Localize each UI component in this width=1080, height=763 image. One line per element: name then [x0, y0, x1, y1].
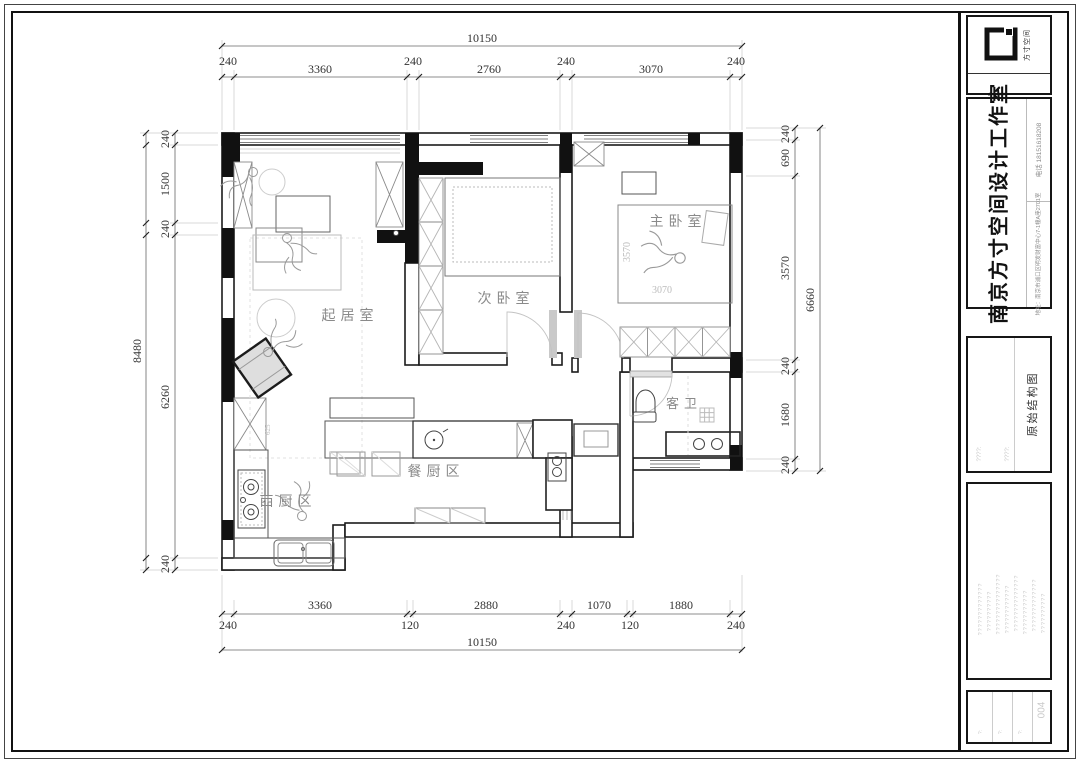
dim-right-total: 6660	[803, 288, 817, 312]
sheet-number: 004	[1037, 702, 1048, 719]
dim-bot-8: 240	[727, 618, 745, 632]
note-col-0: ?????????????	[976, 544, 985, 674]
note-text-1: ??????????	[987, 591, 993, 632]
label-bath: 客卫	[666, 396, 702, 411]
drawing-title-box: 原始结构图 ????: ????:	[966, 336, 1052, 473]
dim-bottom-total: 10150	[467, 635, 497, 649]
dim-bot-2: 120	[401, 618, 419, 632]
footer-label-1: ?:	[998, 730, 1004, 734]
logo-label-wrap: 方寸空间	[1020, 17, 1034, 73]
westkitchen-tall-cabinet	[234, 398, 266, 450]
dim-top-5: 3070	[639, 62, 663, 76]
dim-top-2: 240	[404, 54, 422, 68]
company-name: 南京方寸空间设计工作室	[983, 82, 1012, 324]
dim-left-3: 6260	[158, 385, 172, 409]
dim-right-2: 3570	[778, 256, 792, 280]
note-col-5: ???????????	[1021, 554, 1030, 669]
phone-wrap: 电话 18151618208	[1026, 99, 1050, 201]
drawing-sheet: 起居室 次卧室 主卧室 客卫 餐厨区 西厨区 3570 3070 625	[0, 0, 1080, 763]
island-end-cabinet	[517, 423, 533, 458]
dim-top-4: 240	[557, 54, 575, 68]
company-address: 地址：南京市浦口区明发财富中心7-1幢A座2701室	[1034, 192, 1042, 315]
dim-bot-4: 240	[557, 618, 575, 632]
dim-master-width: 3070	[652, 285, 672, 296]
bedroom2-furniture	[445, 178, 560, 276]
drawing-meta-right-wrap: ????:	[1002, 438, 1014, 470]
master-furniture	[618, 172, 732, 303]
company-name-wrap: 南京方寸空间设计工作室	[968, 99, 1026, 306]
note-text-5: ???????????	[1023, 589, 1029, 634]
dim-bot-7: 1880	[669, 598, 693, 612]
dim-top-3: 2760	[477, 62, 501, 76]
note-col-6: ?????????????	[1030, 539, 1039, 671]
dim-left-1: 1500	[158, 172, 172, 196]
label-master: 主卧室	[650, 213, 707, 229]
master-wardrobe	[620, 327, 730, 357]
label-bedroom2: 次卧室	[478, 290, 535, 306]
footer-label-2: ?:	[1018, 730, 1024, 734]
dim-bot-3: 2880	[474, 598, 498, 612]
logo-box-divider	[968, 73, 1050, 74]
living-right-cabinet	[376, 162, 403, 236]
dim-top-total: 10150	[467, 31, 497, 45]
bedroom2-wardrobe	[419, 178, 443, 354]
dim-bot-0: 240	[219, 618, 237, 632]
dim-left-total: 8480	[130, 339, 144, 363]
dim-left-4: 240	[158, 555, 172, 573]
footer-box: 004 ?: ?: ?:	[966, 690, 1052, 744]
note-col-1: ??????????	[985, 556, 994, 666]
note-text-6: ?????????????	[1032, 579, 1038, 632]
address-wrap: 地址：南京市浦口区明发财富中心7-1幢A座2701室	[1026, 201, 1050, 306]
dim-bot-1: 3360	[308, 598, 332, 612]
drawing-title-wrap: 原始结构图	[1014, 338, 1049, 470]
note-text-7: ??????????	[1041, 593, 1047, 634]
dim-right-4: 1680	[778, 403, 792, 427]
label-dining: 餐厨区	[408, 463, 465, 479]
note-col-4: ??????????????	[1012, 532, 1021, 674]
drawing-meta-left: ????:	[977, 446, 983, 461]
drawing-title: 原始结构图	[1024, 372, 1040, 437]
sheet-number-wrap: 004	[1034, 696, 1050, 724]
label-westkitchen: 西厨区	[260, 493, 317, 509]
floor-plan-area: 起居室 次卧室 主卧室 客卫 餐厨区 西厨区 3570 3070 625	[0, 0, 960, 763]
dim-right-5: 240	[778, 456, 792, 474]
footer-label-2-wrap: ?:	[1016, 724, 1026, 740]
company-box: 南京方寸空间设计工作室 电话 18151618208 地址：南京市浦口区明发财富…	[966, 97, 1052, 309]
note-text-0: ?????????????	[978, 583, 984, 636]
footer-label-0: ?:	[978, 730, 984, 734]
note-col-2: ???????????????	[994, 534, 1003, 674]
dim-bot-5: 1070	[587, 598, 611, 612]
dim-right-3: 240	[778, 357, 792, 375]
dim-top-1: 3360	[308, 62, 332, 76]
drawing-meta-left-wrap: ????:	[974, 438, 986, 470]
dim-cabinet: 625	[264, 424, 272, 435]
footer-divider-0	[992, 692, 993, 742]
footer-label-1-wrap: ?:	[996, 724, 1006, 740]
dim-master-depth: 3570	[622, 242, 633, 262]
floor-plan-svg: 起居室 次卧室 主卧室 客卫 餐厨区 西厨区 3570 3070 625	[0, 0, 960, 763]
dim-right-0: 240	[778, 125, 792, 143]
dim-left-0: 240	[158, 130, 172, 148]
master-closet	[574, 142, 604, 166]
company-phone: 电话 18151618208	[1033, 123, 1043, 178]
label-living: 起居室	[322, 307, 379, 323]
note-text-4: ??????????????	[1014, 575, 1020, 632]
bathroom-fixtures	[574, 376, 740, 456]
dim-left-2: 240	[158, 220, 172, 238]
note-text-2: ???????????????	[996, 574, 1002, 635]
footer-divider-1	[1012, 692, 1013, 742]
note-text-3: ????????????	[1005, 584, 1011, 633]
footer-divider-2	[1032, 692, 1033, 742]
notes-box: ????????????? ?????????? ???????????????…	[966, 482, 1052, 680]
note-col-3: ????????????	[1003, 546, 1012, 671]
footer-label-0-wrap: ?:	[976, 724, 986, 740]
note-col-7: ??????????	[1039, 559, 1048, 667]
dim-top-0: 240	[219, 54, 237, 68]
living-left-cabinet	[234, 162, 252, 228]
drawing-meta-right: ????:	[1005, 446, 1011, 461]
interior-dims: 3570 3070 625	[264, 242, 672, 435]
logo-label: 方寸空间	[1022, 29, 1032, 61]
dim-top-6: 240	[727, 54, 745, 68]
company-logo-icon	[982, 25, 1022, 65]
dim-bot-6: 120	[621, 618, 639, 632]
dim-right-1: 690	[778, 149, 792, 167]
